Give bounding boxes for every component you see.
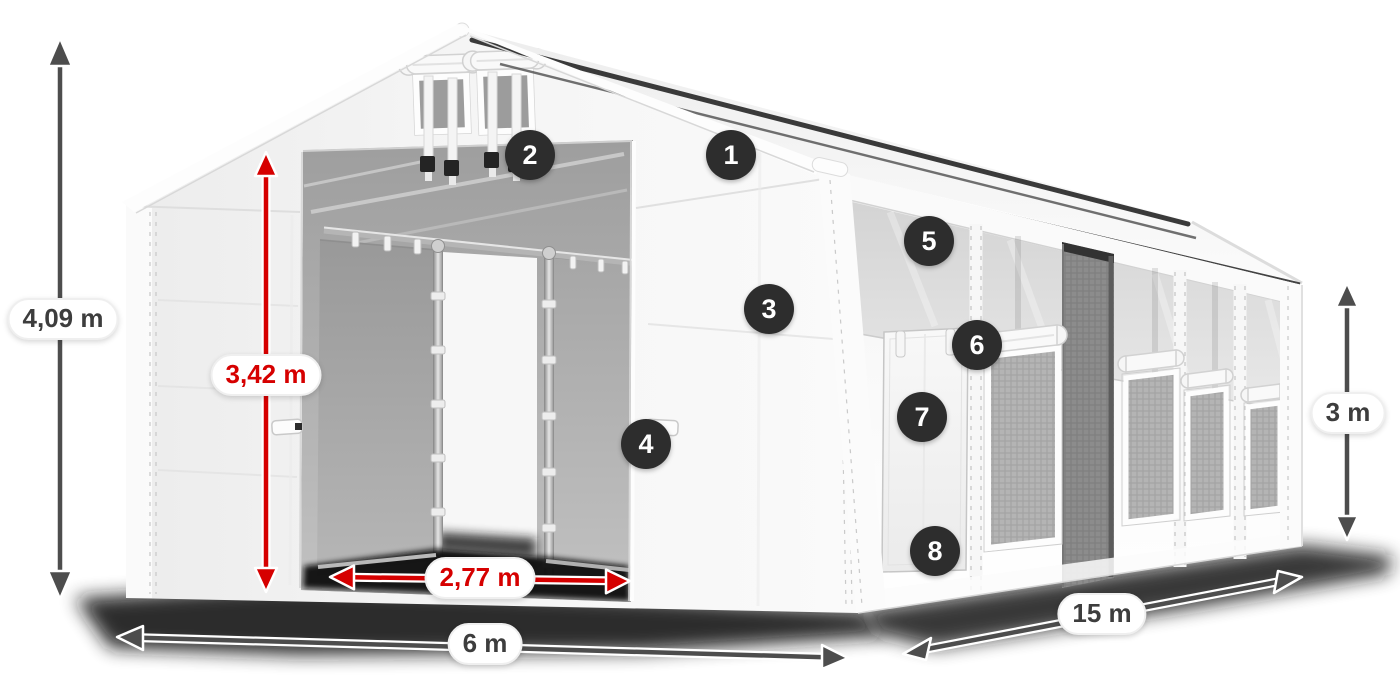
door-handle-left[interactable] xyxy=(272,419,303,435)
dimension-label-total-height: 4,09 m xyxy=(8,298,119,340)
side-open-section xyxy=(1062,242,1114,588)
callout-3[interactable]: 3 xyxy=(744,284,794,334)
dimension-label-wall-height: 3 m xyxy=(1311,392,1386,434)
dimension-label-width: 6 m xyxy=(448,623,523,665)
callout-7[interactable]: 7 xyxy=(897,392,947,442)
callout-5[interactable]: 5 xyxy=(904,216,954,266)
callout-6[interactable]: 6 xyxy=(952,320,1002,370)
callout-2[interactable]: 2 xyxy=(505,130,555,180)
dimension-label-door-height: 3,42 m xyxy=(211,354,322,396)
tent-interior xyxy=(301,140,638,602)
tent-illustration xyxy=(0,0,1400,700)
callout-1[interactable]: 1 xyxy=(706,130,756,180)
tent-dimension-diagram: 1 2 3 4 5 6 7 8 4,09 m 3,42 m 2,77 m 6 m… xyxy=(0,0,1400,700)
mesh-window-3 xyxy=(1181,369,1233,521)
callout-4[interactable]: 4 xyxy=(621,419,671,469)
dimension-label-length: 15 m xyxy=(1057,593,1146,635)
side-wall xyxy=(811,156,1302,613)
dimension-label-door-width: 2,77 m xyxy=(425,557,536,599)
callout-8[interactable]: 8 xyxy=(910,526,960,576)
mesh-window-2 xyxy=(1118,350,1184,526)
